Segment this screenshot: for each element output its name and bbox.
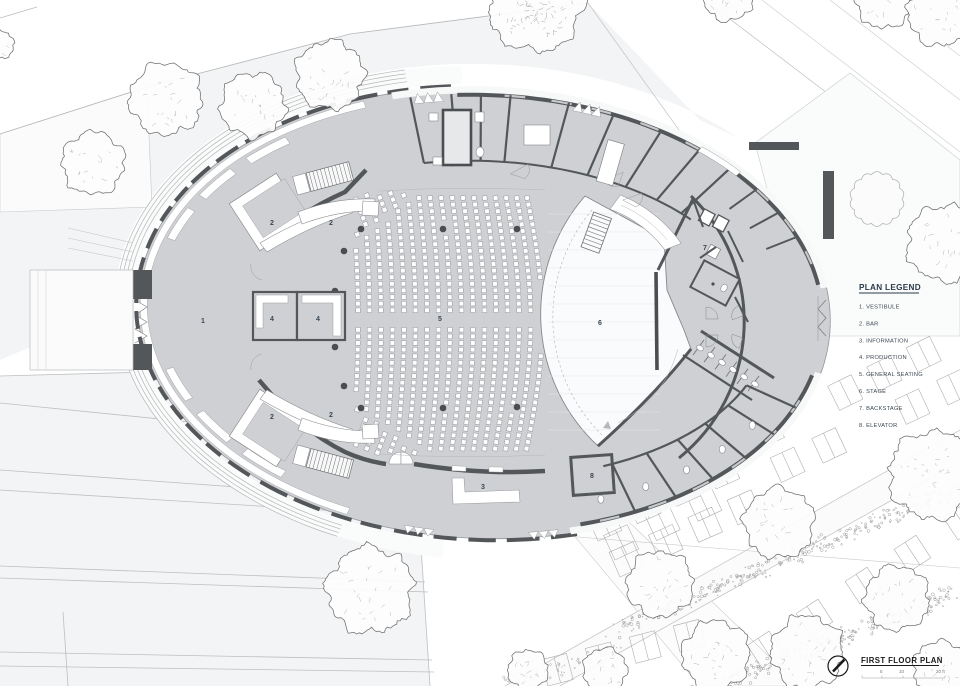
svg-text:4. PRODUCTION: 4. PRODUCTION [859, 355, 907, 361]
svg-text:FIRST FLOOR PLAN: FIRST FLOOR PLAN [861, 656, 943, 665]
svg-text:6: 6 [598, 320, 602, 327]
svg-text:2: 2 [270, 220, 274, 227]
svg-text:10: 10 [899, 669, 905, 674]
svg-text:8: 8 [590, 473, 594, 480]
svg-text:3. INFORMATION: 3. INFORMATION [859, 338, 908, 344]
svg-text:7. BACKSTAGE: 7. BACKSTAGE [859, 406, 903, 412]
svg-text:1. VESTIBULE: 1. VESTIBULE [859, 305, 900, 311]
svg-text:4: 4 [316, 316, 320, 323]
svg-text:7: 7 [703, 245, 707, 252]
svg-text:PLAN LEGEND: PLAN LEGEND [859, 283, 921, 292]
svg-text:2. BAR: 2. BAR [859, 321, 879, 327]
svg-text:4: 4 [270, 316, 274, 323]
svg-text:6. STAGE: 6. STAGE [859, 389, 886, 395]
svg-text:5: 5 [438, 316, 442, 323]
svg-text:5. GENERAL SEATING: 5. GENERAL SEATING [859, 372, 923, 378]
svg-text:20 ft: 20 ft [936, 669, 946, 674]
svg-text:2: 2 [270, 414, 274, 421]
svg-text:3: 3 [481, 484, 485, 491]
svg-text:2: 2 [329, 220, 333, 227]
svg-text:2: 2 [329, 412, 333, 419]
svg-text:1: 1 [201, 318, 205, 325]
svg-text:8. ELEVATOR: 8. ELEVATOR [859, 423, 897, 429]
